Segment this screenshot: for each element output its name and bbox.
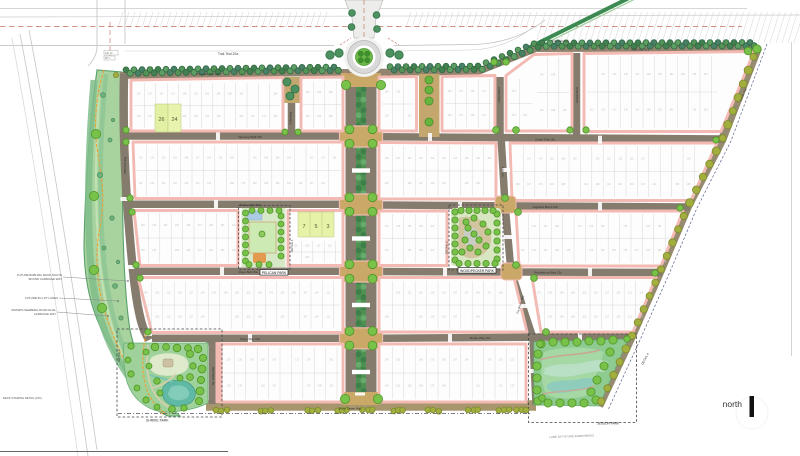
svg-text:DETAIL 2: DETAIL 2	[445, 241, 449, 254]
svg-text:FUTURE BY-LOT LANES: FUTURE BY-LOT LANES	[25, 296, 58, 300]
svg-text:3: 3	[326, 224, 329, 230]
svg-text:Shrike Wall 15b: Shrike Wall 15b	[240, 203, 261, 207]
svg-text:Shrike Way 15c: Shrike Way 15c	[470, 336, 491, 340]
svg-text:5: 5	[314, 224, 317, 230]
svg-text:Taj Landing Way: Taj Landing Way	[212, 366, 215, 385]
svg-text:SHRIKE PARK: SHRIKE PARK	[146, 419, 169, 423]
svg-text:Hilala Wall 20b: Hilala Wall 20b	[631, 48, 650, 52]
svg-text:7: 7	[302, 224, 305, 230]
svg-text:Opening Wall 15b: Opening Wall 15b	[238, 135, 262, 139]
svg-text:100 10: 100 10	[105, 52, 113, 55]
svg-text:DETAIL 1: DETAIL 1	[290, 239, 294, 252]
svg-text:Rutland Bend: Rutland Bend	[575, 87, 579, 103]
svg-text:Joy Bend: Joy Bend	[502, 166, 505, 177]
svg-text:Trak Teal 20a: Trak Teal 20a	[218, 52, 238, 56]
svg-text:Ostrich Bend: Ostrich Bend	[497, 87, 501, 103]
svg-text:Woodstone Way 15c: Woodstone Way 15c	[534, 271, 562, 275]
svg-text:CARRIAGE WAY: CARRIAGE WAY	[34, 312, 56, 316]
svg-text:26: 26	[158, 117, 164, 123]
svg-text:DECK STAMING DETAIL (070): DECK STAMING DETAIL (070)	[3, 396, 42, 400]
svg-text:WOODPECKER PARK: WOODPECKER PARK	[460, 269, 495, 273]
svg-text:Pheasant Rise 20b: Pheasant Rise 20b	[196, 72, 220, 76]
svg-text:north: north	[723, 399, 743, 409]
svg-text:DETAIL 3: DETAIL 3	[117, 349, 121, 362]
svg-text:Mell Bell Way: Mell Bell Way	[123, 156, 127, 173]
svg-text:Cobia Trail 15c: Cobia Trail 15c	[535, 138, 556, 142]
svg-text:Jugebird Bend 15a: Jugebird Bend 15a	[532, 205, 558, 209]
svg-text:PELICAN PARK: PELICAN PARK	[262, 271, 287, 275]
svg-text:Shiny Way 15c: Shiny Way 15c	[240, 337, 260, 341]
svg-text:98 1: 98 1	[105, 57, 110, 60]
svg-text:Trak Teal 20a: Trak Teal 20a	[552, 39, 569, 43]
svg-text:Shear Desert Way: Shear Desert Way	[338, 407, 362, 411]
svg-text:24: 24	[171, 117, 177, 123]
svg-text:F Bell Way: F Bell Way	[289, 111, 293, 124]
svg-text:JESSOR PARK: JESSOR PARK	[597, 422, 620, 426]
svg-text:BOUND CARRIAGE WAY: BOUND CARRIAGE WAY	[29, 277, 62, 281]
svg-text:Rope Bell 15a: Rope Bell 15a	[239, 270, 258, 274]
